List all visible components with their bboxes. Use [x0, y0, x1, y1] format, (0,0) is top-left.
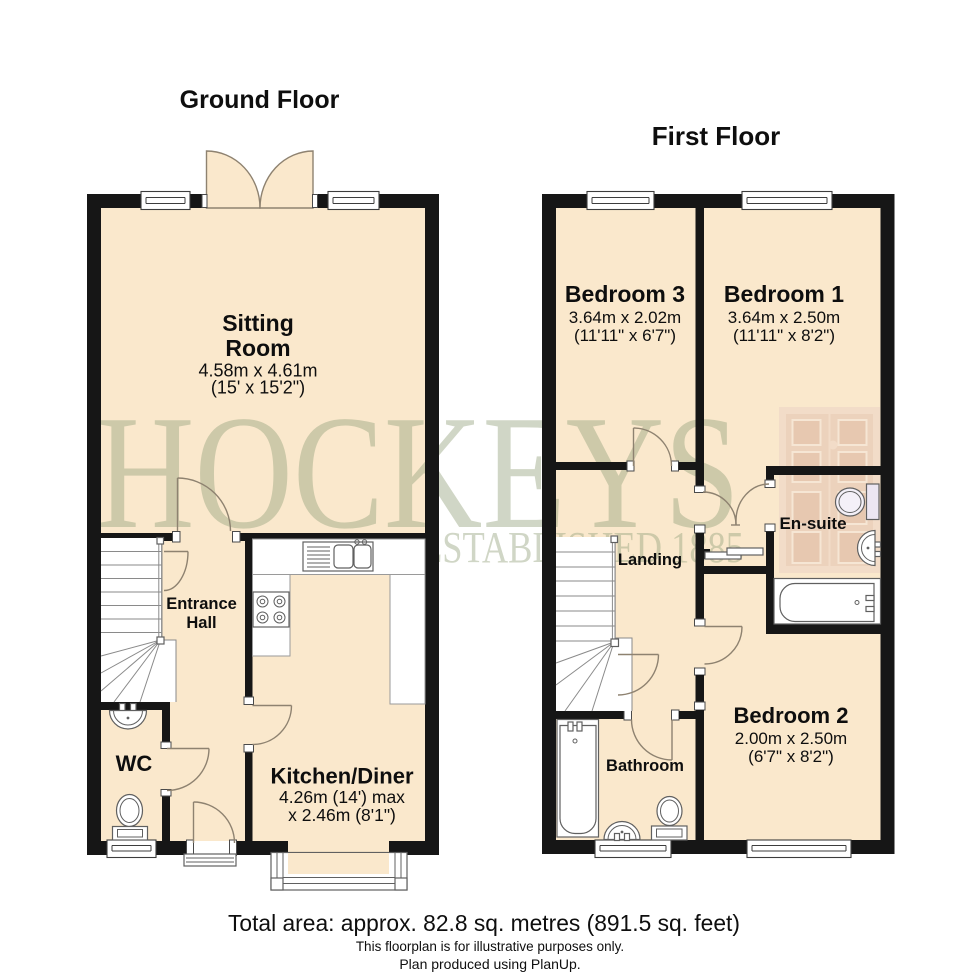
svg-text:3.64m x 2.02m: 3.64m x 2.02m	[569, 308, 681, 327]
svg-text:(11'11" x 8'2"): (11'11" x 8'2")	[733, 326, 835, 345]
svg-text:First Floor: First Floor	[652, 121, 781, 151]
svg-text:Bathroom: Bathroom	[606, 757, 684, 775]
svg-text:Room: Room	[225, 335, 290, 361]
svg-text:(6'7" x 8'2"): (6'7" x 8'2")	[748, 747, 834, 766]
svg-text:Bedroom 2: Bedroom 2	[734, 703, 849, 728]
svg-text:Sitting: Sitting	[222, 310, 294, 336]
svg-text:x 2.46m (8'1"): x 2.46m (8'1")	[288, 805, 396, 825]
svg-text:Entrance: Entrance	[166, 595, 237, 613]
svg-text:(15' x 15'2"): (15' x 15'2")	[211, 378, 305, 398]
svg-text:This floorplan is for illustra: This floorplan is for illustrative purpo…	[356, 939, 624, 954]
svg-text:(11'11" x 6'7"): (11'11" x 6'7")	[574, 326, 676, 345]
svg-text:WC: WC	[116, 751, 153, 776]
svg-text:Bedroom 1: Bedroom 1	[724, 281, 844, 307]
svg-text:En-suite: En-suite	[779, 514, 846, 533]
svg-text:2.00m x 2.50m: 2.00m x 2.50m	[735, 729, 847, 748]
svg-text:Ground Floor: Ground Floor	[180, 86, 340, 114]
svg-text:3.64m x 2.50m: 3.64m x 2.50m	[728, 308, 840, 327]
svg-text:Kitchen/Diner: Kitchen/Diner	[270, 764, 413, 789]
svg-text:Bedroom 3: Bedroom 3	[565, 281, 685, 307]
svg-text:4.26m (14') max: 4.26m (14') max	[279, 787, 405, 807]
svg-text:Total area: approx. 82.8 sq. m: Total area: approx. 82.8 sq. metres (891…	[228, 910, 740, 936]
svg-text:Hall: Hall	[186, 614, 216, 632]
svg-text:Plan produced using PlanUp.: Plan produced using PlanUp.	[399, 956, 580, 972]
svg-text:Landing: Landing	[618, 551, 682, 569]
